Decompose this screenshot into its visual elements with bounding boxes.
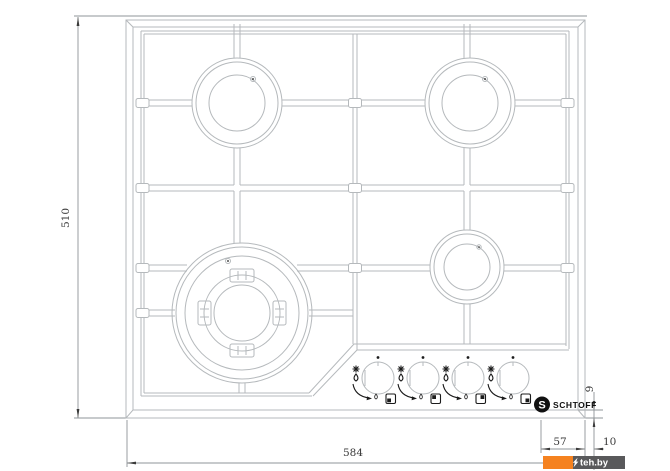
watermark-orange-block — [543, 456, 573, 469]
flame-min-icon — [465, 394, 468, 399]
rotation-arc — [398, 384, 414, 398]
burner-position-fill — [526, 399, 530, 403]
rotation-arc — [353, 384, 369, 398]
flame-min-icon — [375, 394, 378, 399]
panel-dot-icon — [422, 356, 425, 359]
knob-rear-left — [398, 356, 441, 403]
knob-circle — [497, 362, 529, 394]
burner-position-fill — [432, 395, 436, 399]
flame-max-icon — [489, 374, 493, 381]
dim-510-label: 510 — [60, 208, 72, 228]
arc-arrowhead-icon — [367, 396, 372, 400]
flame-max-icon — [354, 374, 358, 381]
burner-front-left-wok — [172, 243, 312, 383]
panel-dot-icon — [467, 356, 470, 359]
spark-icon — [488, 366, 495, 373]
burner-front-right — [430, 230, 504, 304]
dimension-584: 584 — [127, 447, 585, 464]
knob-front-left — [353, 356, 396, 403]
flame-max-icon — [444, 374, 448, 381]
technical-drawing-canvas: 510 584 57 10 9 S SCHTOFF teh.by — [0, 0, 670, 471]
knob-circle — [407, 362, 439, 394]
brand-logo-letter: S — [538, 400, 545, 412]
dim-10-label: 10 — [603, 436, 616, 448]
spark-icon — [353, 366, 360, 373]
burner-position-fill — [387, 399, 391, 403]
burner-position-fill — [481, 395, 485, 399]
control-knobs — [353, 356, 531, 403]
watermark: teh.by — [543, 456, 625, 469]
extension-lines — [74, 16, 603, 470]
flame-max-icon — [399, 374, 403, 381]
knob-circle — [452, 362, 484, 394]
arc-arrowhead-icon — [457, 396, 462, 400]
dimension-10: 10 — [594, 436, 616, 450]
burner-rear-right — [425, 58, 515, 148]
knob-circle — [362, 362, 394, 394]
rotation-arc — [443, 384, 459, 398]
knob-rear-right — [443, 356, 486, 403]
spark-icon — [398, 366, 405, 373]
flame-min-icon — [420, 394, 423, 399]
panel-dot-icon — [377, 356, 380, 359]
arc-arrowhead-icon — [412, 396, 417, 400]
dim-57-label: 57 — [553, 436, 566, 448]
rotation-arc — [488, 384, 504, 398]
flame-min-icon — [510, 394, 513, 399]
knob-front-right — [488, 356, 531, 403]
dim-584-label: 584 — [343, 447, 363, 459]
arc-arrowhead-icon — [502, 396, 507, 400]
spark-icon — [443, 366, 450, 373]
dim-9-label: 9 — [584, 386, 596, 393]
dimension-57: 57 — [541, 436, 585, 450]
watermark-text: teh.by — [580, 458, 609, 469]
gas-hob-drawing: 510 584 57 10 9 S SCHTOFF teh.by — [0, 0, 670, 471]
dimension-510: 510 — [60, 17, 79, 418]
panel-dot-icon — [512, 356, 515, 359]
hob-outline — [126, 20, 585, 418]
burner-rear-left — [192, 58, 282, 148]
brand-name: SCHTOFF — [553, 400, 597, 410]
